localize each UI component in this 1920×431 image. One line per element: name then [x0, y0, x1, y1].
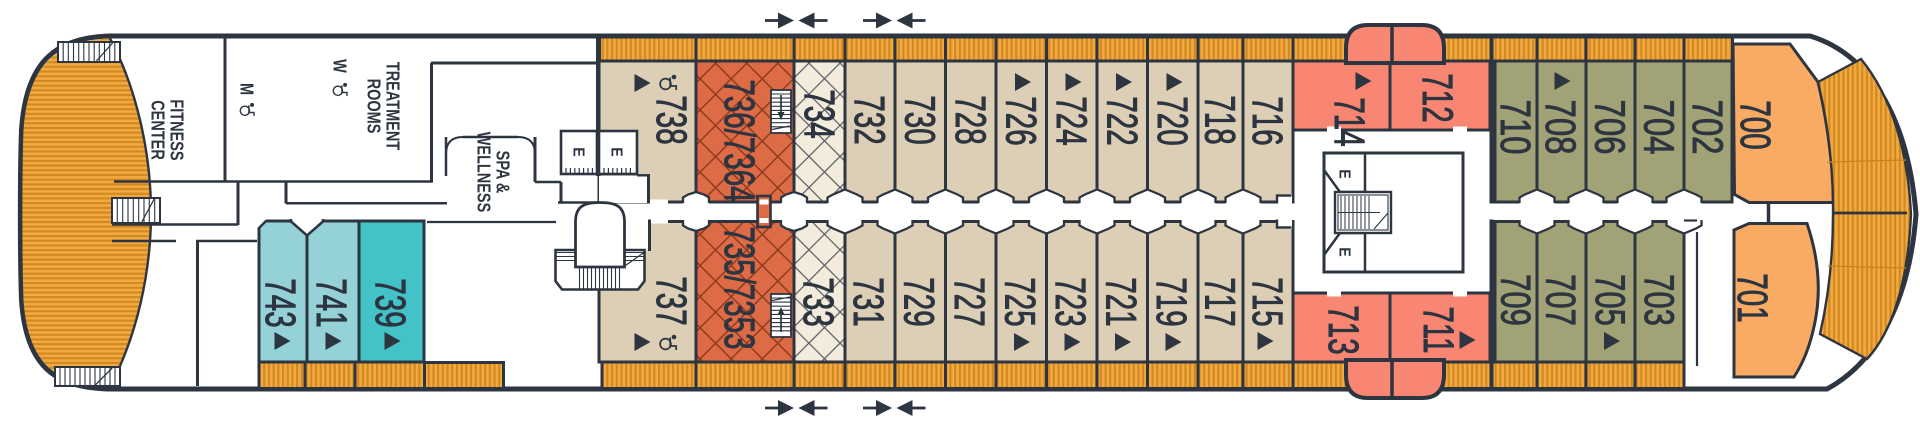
- svg-text:714: 714: [1326, 97, 1374, 146]
- svg-text:736/7364: 736/7364: [716, 79, 764, 202]
- svg-text:723: 723: [1047, 277, 1095, 326]
- svg-text:741: 741: [308, 278, 356, 327]
- svg-text:E: E: [1335, 169, 1353, 178]
- svg-text:E: E: [1335, 247, 1353, 256]
- svg-text:726: 726: [997, 96, 1045, 145]
- svg-text:702: 702: [1683, 99, 1730, 154]
- svg-text:704: 704: [1635, 99, 1682, 154]
- svg-text:739: 739: [367, 278, 415, 327]
- svg-text:712: 712: [1414, 73, 1462, 122]
- svg-text:729: 729: [895, 277, 943, 326]
- svg-text:709: 709: [1492, 274, 1539, 326]
- svg-text:735/7353: 735/7353: [716, 226, 764, 349]
- svg-text:ROOMS: ROOMS: [363, 79, 383, 134]
- svg-text:730: 730: [896, 95, 944, 144]
- svg-text:717: 717: [1196, 277, 1244, 326]
- svg-text:731: 731: [845, 277, 893, 326]
- svg-text:TREATMENT: TREATMENT: [382, 62, 402, 150]
- svg-text:732: 732: [846, 95, 894, 144]
- svg-text:738: 738: [648, 95, 696, 144]
- svg-text:720: 720: [1149, 96, 1197, 145]
- svg-text:713: 713: [1320, 305, 1368, 354]
- svg-text:710: 710: [1491, 99, 1538, 154]
- svg-text:708: 708: [1536, 99, 1583, 154]
- svg-text:721: 721: [1097, 277, 1145, 326]
- svg-text:705: 705: [1587, 274, 1634, 326]
- svg-text:733: 733: [795, 277, 843, 326]
- svg-text:743: 743: [257, 278, 305, 327]
- svg-text:718: 718: [1196, 95, 1244, 144]
- svg-text:E: E: [569, 147, 587, 156]
- svg-text:706: 706: [1586, 99, 1633, 154]
- svg-text:719: 719: [1148, 277, 1196, 326]
- svg-text:700: 700: [1732, 100, 1780, 149]
- svg-text:W: W: [329, 59, 349, 73]
- svg-text:715: 715: [1244, 277, 1292, 326]
- svg-text:M: M: [236, 83, 256, 95]
- svg-text:727: 727: [946, 277, 994, 326]
- svg-text:722: 722: [1098, 96, 1146, 145]
- svg-text:737: 737: [648, 276, 696, 325]
- svg-text:CENTER: CENTER: [147, 100, 167, 160]
- svg-text:725: 725: [996, 277, 1044, 326]
- svg-text:707: 707: [1537, 274, 1584, 326]
- svg-text:703: 703: [1636, 274, 1683, 326]
- svg-text:724: 724: [1048, 96, 1096, 145]
- svg-text:711: 711: [1415, 306, 1463, 353]
- svg-text:WELLNESS: WELLNESS: [473, 132, 493, 213]
- svg-text:701: 701: [1729, 273, 1777, 322]
- svg-text:SPA &: SPA &: [492, 151, 512, 194]
- svg-text:734: 734: [796, 89, 844, 138]
- svg-text:716: 716: [1244, 96, 1292, 145]
- svg-text:E: E: [607, 147, 625, 156]
- svg-text:728: 728: [947, 95, 995, 144]
- svg-text:FITNESS: FITNESS: [166, 99, 186, 160]
